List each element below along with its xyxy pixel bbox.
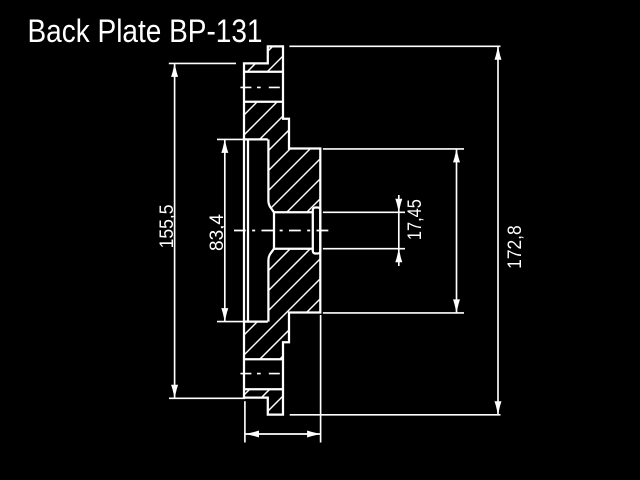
svg-text:Back Plate BP-131: Back Plate BP-131 (28, 13, 263, 49)
svg-text:83,4: 83,4 (206, 214, 228, 251)
svg-text:172,8: 172,8 (504, 225, 526, 269)
svg-text:155,5: 155,5 (156, 204, 178, 248)
svg-text:17,45: 17,45 (404, 199, 426, 240)
